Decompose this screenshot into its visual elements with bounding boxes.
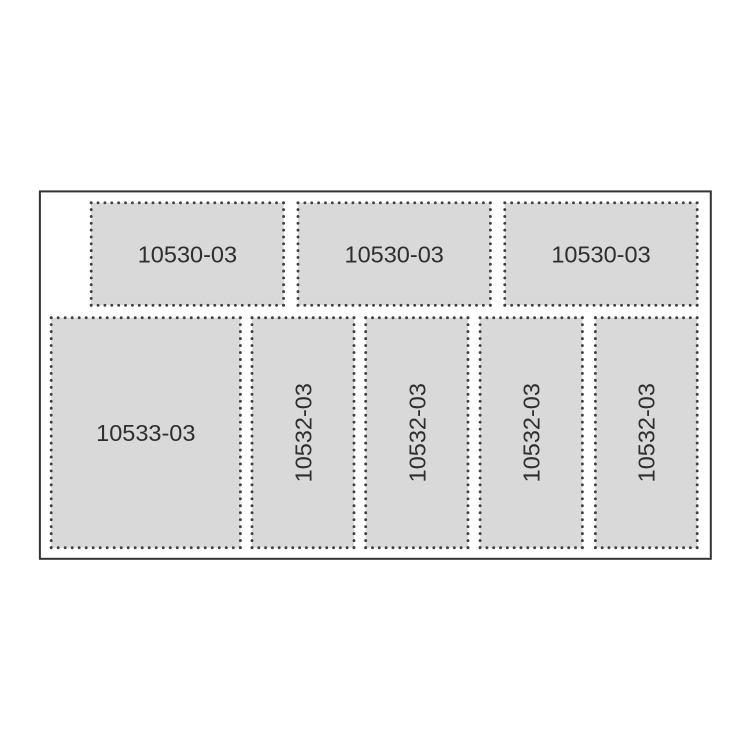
- svg-text:10530-03: 10530-03: [345, 241, 444, 267]
- svg-text:10532-03: 10532-03: [634, 383, 660, 482]
- svg-text:10533-03: 10533-03: [96, 420, 195, 446]
- svg-text:10532-03: 10532-03: [290, 383, 316, 482]
- svg-text:10532-03: 10532-03: [404, 383, 430, 482]
- svg-text:10530-03: 10530-03: [138, 241, 237, 267]
- svg-text:10530-03: 10530-03: [551, 241, 650, 267]
- svg-text:10532-03: 10532-03: [519, 383, 545, 482]
